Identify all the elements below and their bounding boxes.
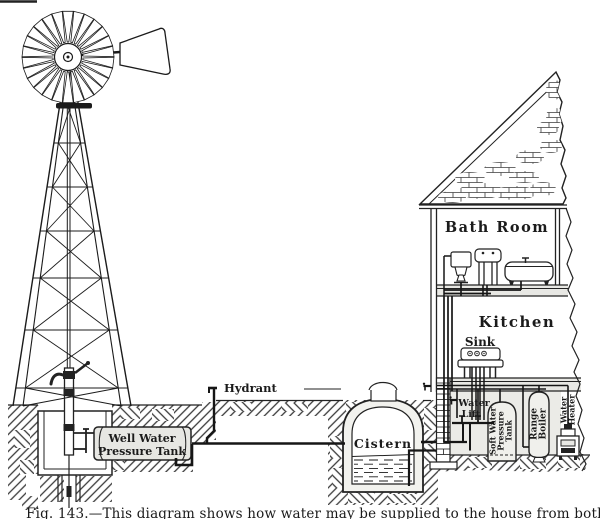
house-left-wall — [431, 208, 437, 392]
water-lift-label-1: Water — [457, 398, 490, 409]
tower-leg — [13, 97, 61, 406]
kitchen-label: Kitchen — [479, 313, 556, 331]
rotor-axle — [67, 56, 70, 59]
tower-brace — [47, 231, 102, 278]
tower-leg — [77, 97, 131, 406]
bathtub — [505, 258, 553, 286]
windmill — [13, 11, 170, 406]
range-boiler-label-2: Boiler — [539, 408, 549, 439]
well-tank-label-2: Pressure Tank — [98, 445, 186, 458]
house: Bath Room Kitchen Sink — [419, 72, 590, 471]
bath-room-label: Bath Room — [445, 219, 549, 236]
heater-door — [561, 448, 575, 453]
cistern-label: Cistern — [354, 436, 412, 451]
sink-label: Sink — [465, 335, 496, 349]
tower-brace — [52, 143, 80, 187]
soft-tank-label-3: Tank — [504, 420, 514, 442]
sink-faucet-handles — [468, 351, 487, 356]
windmill-tower — [13, 66, 131, 406]
diagram-canvas: Cistern — [0, 0, 600, 519]
windmill-rotor — [22, 11, 114, 102]
soft-water-pressure-tank: Soft Water Pressure Tank — [488, 402, 517, 461]
bathroom-right-wall — [556, 208, 560, 285]
figure-caption: Fig. 143.—This diagram shows how water m… — [26, 506, 600, 519]
tower-brace — [40, 278, 109, 330]
tower-brace — [33, 330, 118, 388]
hydrant-label: Hydrant — [224, 381, 277, 395]
toilet — [451, 252, 471, 283]
exterior-faucet-icon — [423, 383, 431, 391]
range-boiler: Range Boiler — [529, 392, 549, 462]
water-lift-label-2: Lift — [462, 409, 481, 420]
cistern: Cistern — [343, 383, 423, 493]
figure-illustration: Cistern — [0, 0, 600, 519]
foundation-footing — [430, 462, 457, 469]
heater-cap — [564, 424, 572, 429]
pump-head — [63, 371, 75, 379]
cistern-manhole-cap — [369, 383, 397, 391]
pump-rod-coupling — [67, 486, 72, 497]
tail-vane — [120, 28, 170, 74]
windmill-platform — [56, 103, 92, 109]
pump-handle — [75, 363, 88, 373]
pump-spout — [51, 374, 63, 384]
tower-brace — [58, 143, 87, 187]
well-tank-label-1: Well Water — [107, 432, 175, 445]
lavatory — [475, 249, 501, 285]
